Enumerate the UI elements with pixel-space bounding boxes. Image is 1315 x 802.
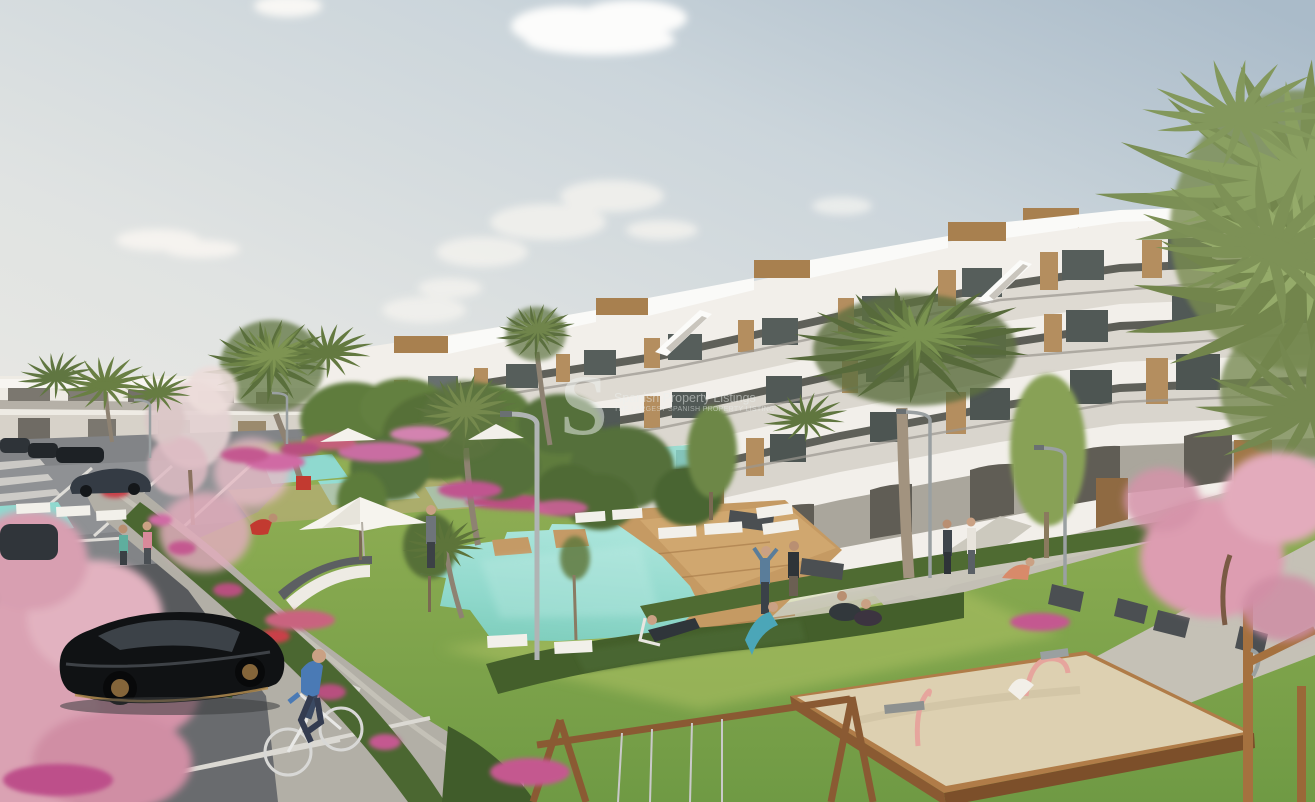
svg-text:Spanish Property Listings: Spanish Property Listings — [614, 391, 756, 405]
svg-text:THE LARGEST SPANISH PROPERTY L: THE LARGEST SPANISH PROPERTY LISTING — [614, 406, 775, 413]
svg-text:S: S — [560, 357, 608, 453]
